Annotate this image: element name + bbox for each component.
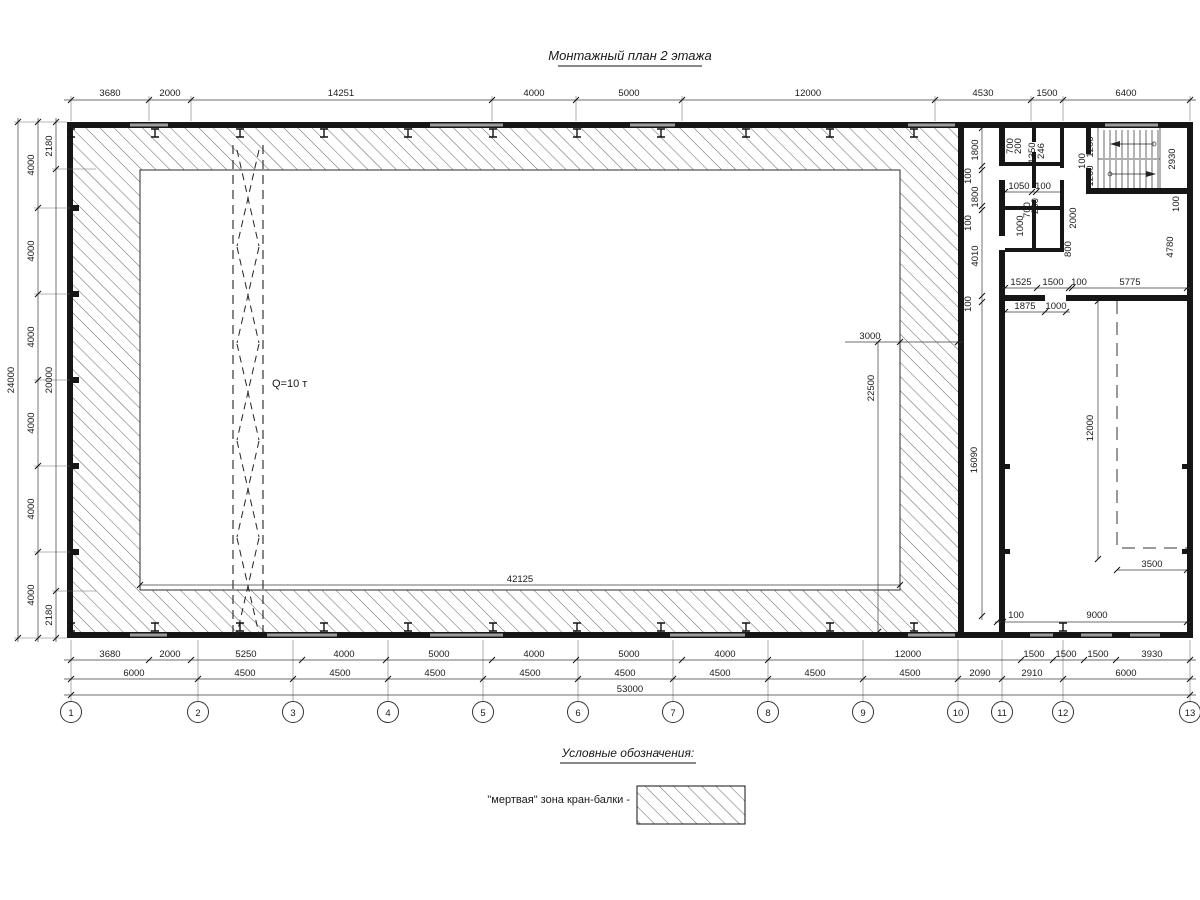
dim-label: 1500 [1042,277,1063,288]
dim-label: 4000 [26,584,37,605]
dim-label: 3680 [99,88,120,99]
dim-label: 800 [1063,241,1074,257]
dim-label: 1000 [1015,215,1026,236]
dim-label: 6400 [1115,88,1136,99]
column-mark [73,205,79,211]
window [908,124,955,127]
grid-axis-number: 9 [860,708,865,719]
top-dimension-row: 3680 2000 14251 4000 5000 12000 4530 150… [64,88,1196,121]
dim-label: 2910 [1021,668,1042,679]
dim-label: 2000 [1068,207,1079,228]
stair-arrowhead [1146,171,1156,177]
dim-label: 1200 [1085,165,1096,186]
dim-label: 4000 [333,649,354,660]
dim-label: 2000 [159,88,180,99]
dim-label: 4780 [1165,236,1176,257]
column-mark [73,549,79,555]
grid-axis-number: 3 [290,708,295,719]
grid-axis-number: 7 [670,708,675,719]
dim-label: 5775 [1119,277,1140,288]
dim-label: 4500 [424,668,445,679]
column-mark [73,377,79,383]
dim-label: 100 [963,296,974,312]
dim-label: 100 [1008,610,1024,621]
dim-label: 2930 [1167,148,1178,169]
dim-label: 4530 [972,88,993,99]
staircase [1098,128,1160,188]
dim-label: 100 [963,168,974,184]
dim-label: 20000 [44,367,55,393]
dim-label: 3000 [859,331,880,342]
dim-label: 5000 [428,649,449,660]
column-mark [73,463,79,469]
annex-annotations: 1800 100 1800 100 4010 100 16090 700 200… [963,125,1190,625]
window [430,634,503,637]
grid-axis-number: 8 [765,708,770,719]
drawing-title: Монтажный план 2 этажа [548,48,711,66]
wall-right [1187,122,1193,638]
window [630,124,675,127]
dim-label: 14251 [328,88,354,99]
dim-label: 1000 [1045,301,1066,312]
dim-label: 5000 [618,649,639,660]
dim-label: 2090 [969,668,990,679]
window [130,634,167,637]
dim-label: 100 [1171,196,1182,212]
grid-axis-markers: 1 2 3 4 5 6 7 8 9 10 11 12 13 [61,702,1200,723]
legend-hatch-swatch [637,786,745,824]
dim-label: 4500 [899,668,920,679]
grid-axis-number: 2 [195,708,200,719]
window [670,634,745,637]
dim-label: 1525 [1010,277,1031,288]
dim-label: 1800 [970,139,981,160]
window [430,124,503,127]
dim-label: 100 [1035,181,1051,192]
dim-label: 200 [1030,198,1041,214]
dim-label: 3500 [1141,559,1162,570]
dim-label: 6000 [1115,668,1136,679]
dim-label: 5250 [235,649,256,660]
dim-label: 2000 [159,649,180,660]
dim-label: 9000 [1086,610,1107,621]
dim-label: 4000 [26,154,37,175]
crane-capacity-label: Q=10 т [272,378,307,390]
column-mark [1005,549,1010,554]
crane-coverage-outline [140,170,900,590]
dim-label: 4000 [523,88,544,99]
dim-label: 4000 [26,498,37,519]
dim-label: 22500 [866,375,877,401]
dim-label: 4500 [614,668,635,679]
window [267,634,337,637]
dim-label: 1500 [1036,88,1057,99]
hatch-band-bottom [73,590,958,632]
dim-label: 42125 [507,574,533,585]
crane-runway-rails [233,145,263,634]
grid-axis-number: 5 [480,708,485,719]
floor-plan-canvas: Монтажный план 2 этажа [0,0,1200,900]
dim-label: 200 [1013,138,1024,154]
dim-label: 4000 [26,412,37,433]
legend: Условные обозначения: "мертвая" зона кра… [487,746,745,824]
grid-axis-number: 13 [1185,708,1196,719]
dim-label: 4500 [519,668,540,679]
hatch-band-left [73,170,140,590]
annex-left-wall-seg [999,250,1005,632]
annex-cross-wall [1066,295,1187,301]
grid-axis-number: 11 [997,708,1007,719]
grid-axis-number: 10 [953,708,964,719]
dim-label: 4000 [714,649,735,660]
building-walls [67,122,1193,638]
grid-axis-number: 6 [575,708,580,719]
dim-label: 4500 [329,668,350,679]
partition [1032,128,1036,142]
annex-left-wall-seg [999,180,1005,236]
dim-label: 3930 [1141,649,1162,660]
grid-axis-number: 1 [68,708,73,719]
dim-label: 4000 [523,649,544,660]
stair-wall [1086,188,1187,194]
dead-zone-hatching [73,128,958,632]
window [1105,124,1158,127]
dim-label: 1800 [970,186,981,207]
column-mark [1005,464,1010,469]
crane-free-zone-dashed [1117,301,1187,548]
dim-label: 3680 [99,649,120,660]
grid-axis-number: 12 [1058,708,1069,719]
grid-axis-number: 4 [385,708,390,719]
partition [1060,128,1064,168]
dim-label: 6000 [123,668,144,679]
dim-label: 246 [1036,143,1047,159]
dim-label: 1500 [1023,649,1044,660]
drawing-sheet: Монтажный план 2 этажа [0,0,1200,900]
dim-label: 4500 [804,668,825,679]
page-title: Монтажный план 2 этажа [548,48,711,63]
dim-label: 1050 [1008,181,1029,192]
dim-label: 2180 [44,135,55,156]
dim-label: 100 [1071,277,1087,288]
dim-label: 12000 [795,88,821,99]
window [1030,634,1053,637]
dim-label: 2180 [44,604,55,625]
window [1081,634,1112,637]
column-mark [73,291,79,297]
dim-label: 4500 [709,668,730,679]
dim-label: 12000 [895,649,921,660]
dim-label: 4000 [26,326,37,347]
wall-hall-annex-divider [958,128,964,632]
window [908,634,955,637]
dim-label: 4010 [970,245,981,266]
dim-label: 16090 [969,447,980,473]
legend-dead-zone-label: "мертвая" зона кран-балки - [487,794,630,806]
window [1130,634,1160,637]
column-mark [1182,464,1187,469]
hatch-band-right [900,170,958,590]
dim-label: 1875 [1014,301,1035,312]
stair-boundaries [1098,128,1160,188]
dim-label: 4500 [234,668,255,679]
wall-bottom [67,632,1193,638]
hall-interior: Q=10 т 42125 3000 22500 [137,145,963,635]
window [130,124,168,127]
dim-label: 24000 [6,367,17,393]
stair-arrowhead [1110,141,1120,147]
dim-label: 5000 [618,88,639,99]
dim-label: 1500 [1087,649,1108,660]
dim-label: 12000 [1085,415,1096,441]
dim-label: 4000 [26,240,37,261]
legend-heading: Условные обозначения: [561,746,694,760]
column-mark [1182,549,1187,554]
dim-label: 1500 [1055,649,1076,660]
crane-cable-crossings [237,150,259,634]
dim-label: 53000 [617,684,643,695]
dim-label: 100 [963,215,974,231]
bottom-dimension-rows: 3680 2000 5250 4000 5000 4000 5000 4000 … [64,640,1196,701]
hatch-band-top [73,128,958,170]
